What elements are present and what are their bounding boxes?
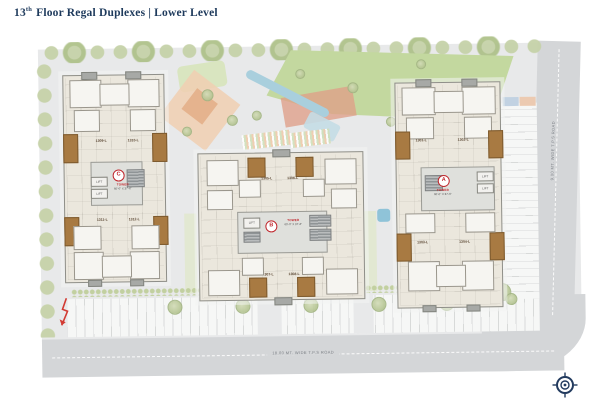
room	[461, 86, 495, 114]
lift-label: LIFT	[91, 177, 108, 187]
tower-c-caption: TOWER 60'-0" X 37'-6"	[107, 183, 139, 190]
room	[326, 268, 358, 294]
plunge-pool	[377, 209, 390, 222]
roof-tab	[422, 305, 436, 312]
unit-label: 1310-L	[122, 139, 144, 143]
roof-tab	[125, 71, 141, 79]
tower-c-marker: C	[113, 169, 125, 181]
entry-arrow-icon	[57, 297, 73, 329]
driveway	[353, 295, 374, 333]
tree-icon	[182, 127, 192, 137]
balcony	[249, 277, 267, 297]
room	[433, 91, 463, 113]
room	[207, 190, 233, 210]
room	[324, 158, 356, 184]
tree-icon	[252, 111, 262, 121]
unit-label: 1303-L	[412, 241, 434, 245]
tower-a-building: 1301-L 1302-L LIFT LIFT A TOWER 60'-0" X…	[394, 81, 503, 308]
room	[331, 188, 357, 208]
unit-label: 1311-L	[91, 219, 113, 223]
stair-shaft	[243, 232, 260, 243]
room	[206, 160, 238, 186]
tree-icon	[416, 59, 426, 69]
room	[130, 109, 156, 131]
room	[102, 255, 132, 277]
bottom-road: 18.00 MT. WIDE T.P.S ROAD	[42, 332, 564, 377]
tree-icon	[227, 115, 238, 126]
tree-icon	[371, 297, 386, 312]
tower-a-marker: A	[438, 175, 450, 187]
room	[127, 79, 159, 107]
unit-label: 1304-L	[454, 241, 476, 245]
hedge	[184, 213, 197, 293]
room	[242, 258, 264, 276]
room	[130, 251, 160, 279]
balcony	[297, 277, 315, 297]
bottom-road-label: 18.00 MT. WIDE T.P.S ROAD	[42, 346, 564, 358]
room	[401, 87, 435, 115]
tower-b-building: 1305-L 1306-L LIFT B TOWER 60'-0" X 37'-…	[197, 151, 365, 301]
room	[208, 270, 240, 296]
room	[436, 265, 466, 287]
unit-label: 1305-L	[257, 177, 277, 181]
tree-row-left	[33, 59, 59, 337]
parking-cell-blue	[503, 97, 519, 106]
unit-label: 1312-L	[123, 218, 145, 222]
compass-icon	[552, 372, 578, 398]
room	[69, 80, 101, 108]
roof-tab	[272, 149, 290, 157]
room	[239, 180, 261, 198]
tree-icon	[347, 82, 358, 93]
tree-icon	[201, 89, 213, 101]
site-plan: 18.00 MT. WIDE T.P.S ROAD 9.00 MT. WIDE …	[0, 0, 600, 400]
stair-shaft	[309, 229, 331, 241]
room	[465, 212, 495, 232]
tower-a-caption: TOWER 60'-0" X 37'-6"	[427, 189, 459, 196]
balcony	[396, 233, 411, 261]
roof-tab	[466, 304, 480, 311]
roof-tab	[461, 79, 477, 87]
balcony	[295, 157, 313, 177]
room	[405, 213, 435, 233]
balcony	[489, 232, 504, 260]
balcony	[152, 133, 167, 162]
unit-label: 1306-L	[283, 177, 303, 181]
parking-cell-peach	[520, 97, 536, 106]
unit-label: 1301-L	[410, 139, 432, 143]
lift-label: LIFT	[91, 189, 108, 199]
roof-tab	[88, 280, 102, 287]
tree-icon	[303, 298, 318, 313]
roof-tab	[81, 72, 97, 80]
room	[73, 226, 101, 250]
room	[462, 260, 494, 290]
tower-b-caption: TOWER 60'-0" X 37'-6"	[279, 219, 307, 226]
tree-icon	[295, 69, 305, 79]
road-centerline	[552, 49, 559, 315]
hedge	[364, 211, 377, 291]
roof-tab	[274, 297, 292, 305]
balcony	[63, 134, 78, 163]
tower-c-building: 1309-L 1310-L LIFT LIFT C TOWER 60'-0" X…	[62, 74, 167, 283]
lift-label: LIFT	[243, 218, 260, 229]
unit-label: 1309-L	[90, 140, 112, 144]
roof-tab	[130, 279, 144, 286]
balcony	[488, 130, 503, 158]
room	[303, 179, 325, 197]
room	[302, 257, 324, 275]
unit-label: 1302-L	[452, 139, 474, 143]
room	[99, 83, 129, 105]
lift-label: LIFT	[477, 171, 494, 181]
room	[74, 252, 104, 280]
tower-b-marker: B	[265, 220, 277, 232]
balcony	[247, 157, 265, 177]
floor-plan-page: 13thFloor Regal Duplexes | Lower Level 1…	[0, 0, 600, 400]
lift-label: LIFT	[477, 183, 494, 193]
stair-shaft	[309, 215, 331, 227]
room	[74, 110, 100, 132]
balcony	[395, 131, 410, 159]
room	[131, 225, 159, 249]
parking-stalls-right	[501, 103, 540, 299]
roof-tab	[415, 79, 431, 87]
